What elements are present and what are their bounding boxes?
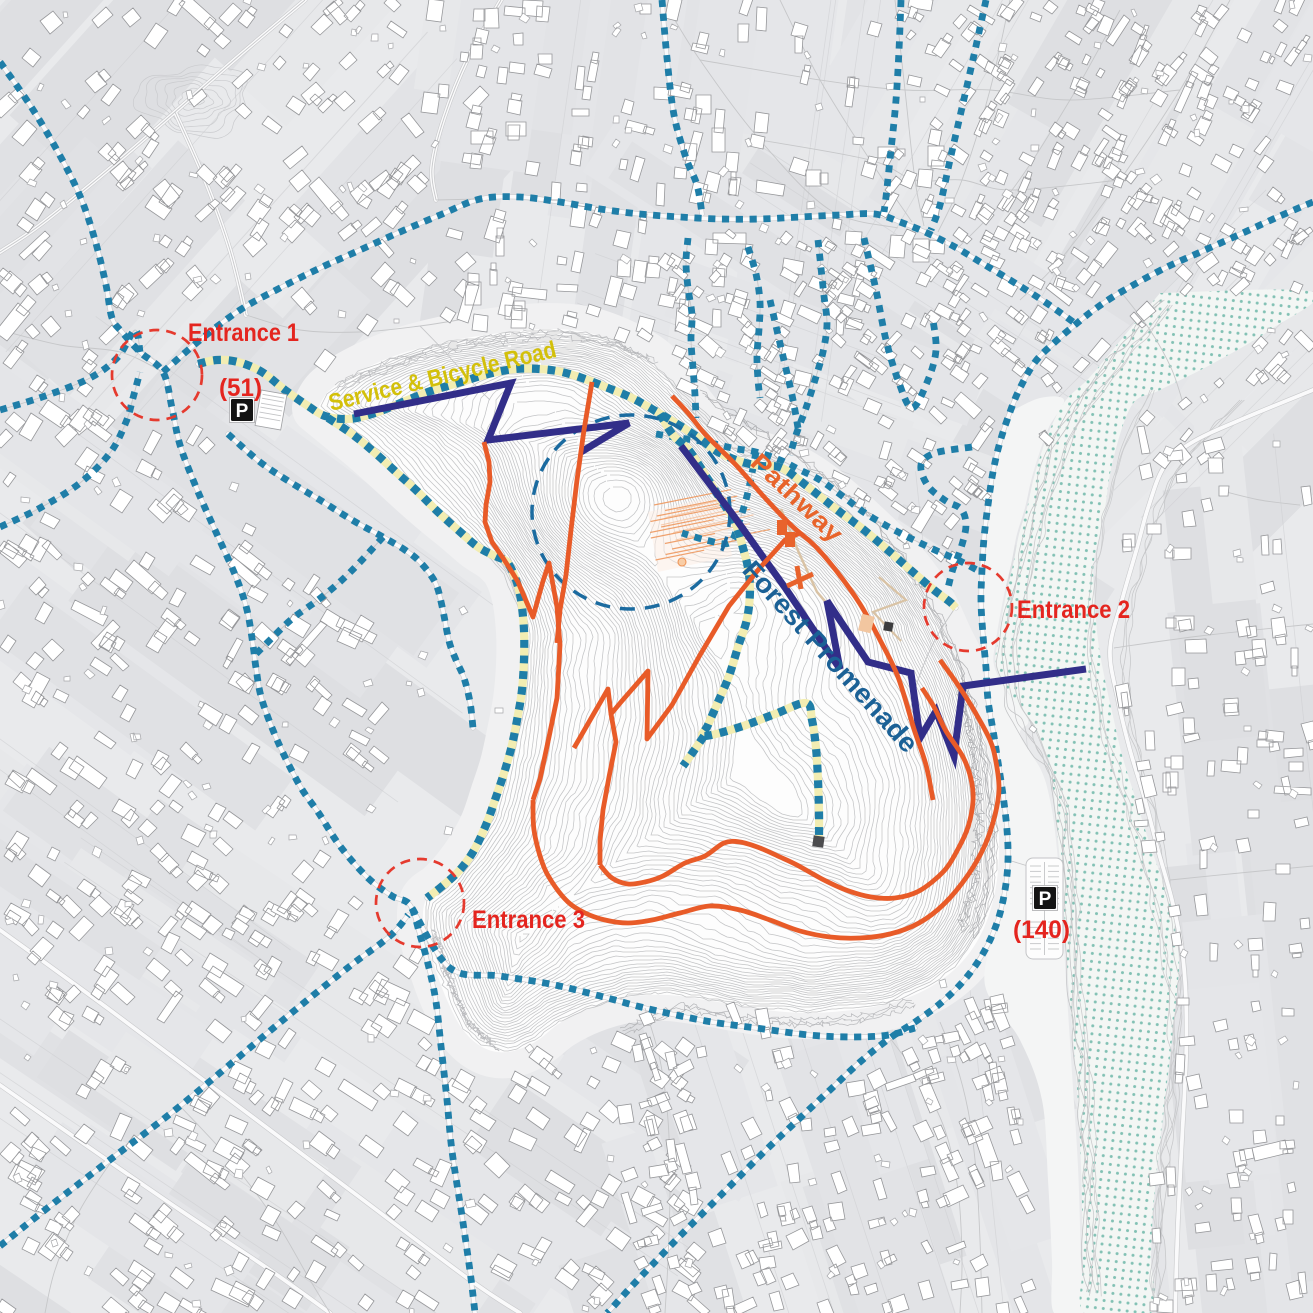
svg-text:Entrance 1: Entrance 1 (188, 319, 299, 347)
svg-text:Entrance 3: Entrance 3 (472, 906, 585, 934)
svg-text:Entrance 2: Entrance 2 (1017, 596, 1130, 624)
svg-text:P: P (236, 401, 249, 422)
svg-text:P: P (1039, 889, 1052, 910)
svg-text:(140): (140) (1013, 916, 1070, 944)
svg-text:(51): (51) (219, 374, 262, 402)
